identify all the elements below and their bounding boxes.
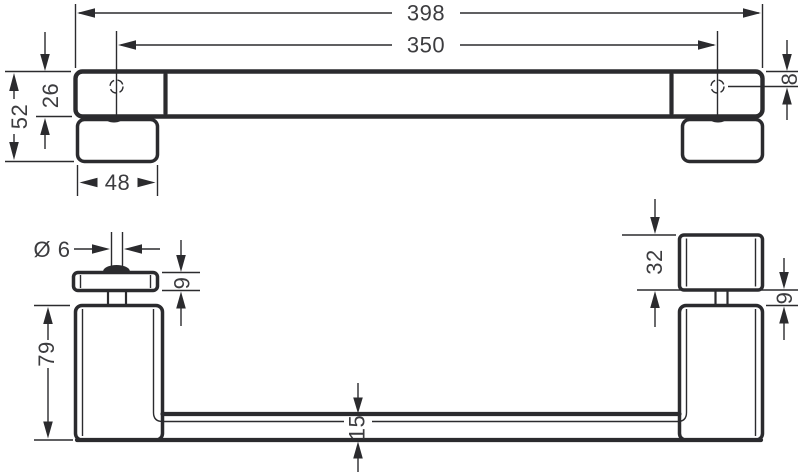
dim-flange-thickness: 9 bbox=[162, 240, 200, 326]
right-clamp-block bbox=[680, 235, 763, 290]
arrow-left-icon bbox=[77, 8, 95, 18]
dim-plate-width-label: 48 bbox=[105, 170, 130, 195]
arrow-right-icon bbox=[92, 244, 110, 254]
arrow-up-icon bbox=[9, 73, 19, 91]
grip-bar-inner-line bbox=[154, 309, 687, 422]
dim-bar-height-label: 26 bbox=[38, 83, 63, 108]
dim-hole-offset-label: 8 bbox=[777, 73, 800, 86]
dim-bar-thickness-label: 15 bbox=[345, 415, 370, 440]
dim-hole-spacing-label: 350 bbox=[407, 33, 445, 58]
right-leg bbox=[680, 306, 763, 441]
arrow-up-icon bbox=[43, 307, 53, 324]
handle-bar-outline bbox=[76, 72, 763, 117]
dim-overall-width-label: 398 bbox=[407, 1, 445, 26]
dim-screw-diameter: Ø 6 bbox=[34, 237, 160, 262]
screw-cap bbox=[103, 265, 130, 271]
arrow-up-icon bbox=[779, 307, 789, 324]
technical-drawing-page: 398 350 52 26 bbox=[0, 0, 800, 476]
side-view: Ø 6 9 79 15 bbox=[34, 199, 798, 472]
arrow-up-icon bbox=[176, 292, 186, 309]
arrow-right-icon bbox=[138, 178, 156, 188]
dim-neck-height-label: 9 bbox=[772, 292, 797, 305]
dim-flange-thickness-label: 9 bbox=[170, 277, 195, 290]
dim-screw-diameter-label: Ø 6 bbox=[34, 237, 71, 262]
left-leg bbox=[76, 306, 163, 441]
arrow-down-icon bbox=[40, 54, 50, 71]
arrow-down-icon bbox=[43, 422, 53, 439]
arrow-down-icon bbox=[176, 255, 186, 272]
dim-bar-thickness: 15 bbox=[345, 383, 370, 472]
dim-leg-height: 79 bbox=[34, 306, 73, 441]
dim-hole-spacing: 350 bbox=[118, 33, 716, 58]
dim-bar-height: 26 bbox=[36, 32, 72, 149]
arrow-down-icon bbox=[779, 272, 789, 289]
dim-total-height-label: 52 bbox=[7, 104, 32, 129]
arrow-up-icon bbox=[40, 118, 50, 135]
right-wall-plate bbox=[683, 120, 763, 162]
arrow-up-icon bbox=[782, 88, 792, 105]
left-flange bbox=[74, 273, 158, 291]
dim-clamp-height-label: 32 bbox=[642, 249, 667, 274]
arrow-down-icon bbox=[650, 217, 660, 234]
dim-plate-width: 48 bbox=[78, 165, 158, 196]
arrow-left-icon bbox=[80, 178, 98, 188]
front-view: 398 350 52 26 bbox=[5, 1, 800, 197]
left-wall-plate bbox=[78, 120, 158, 162]
dim-neck-height: 9 bbox=[766, 258, 798, 340]
arrow-down-icon bbox=[9, 142, 19, 160]
technical-drawing-canvas: 398 350 52 26 bbox=[0, 0, 800, 476]
arrow-up-icon bbox=[353, 442, 363, 459]
arrow-right-icon bbox=[743, 8, 761, 18]
arrow-right-icon bbox=[698, 40, 716, 50]
arrow-left-icon bbox=[124, 244, 142, 254]
dim-leg-height-label: 79 bbox=[34, 341, 59, 366]
arrow-down-icon bbox=[782, 54, 792, 71]
arrow-up-icon bbox=[650, 291, 660, 308]
arrow-down-icon bbox=[353, 398, 363, 414]
arrow-left-icon bbox=[118, 40, 136, 50]
